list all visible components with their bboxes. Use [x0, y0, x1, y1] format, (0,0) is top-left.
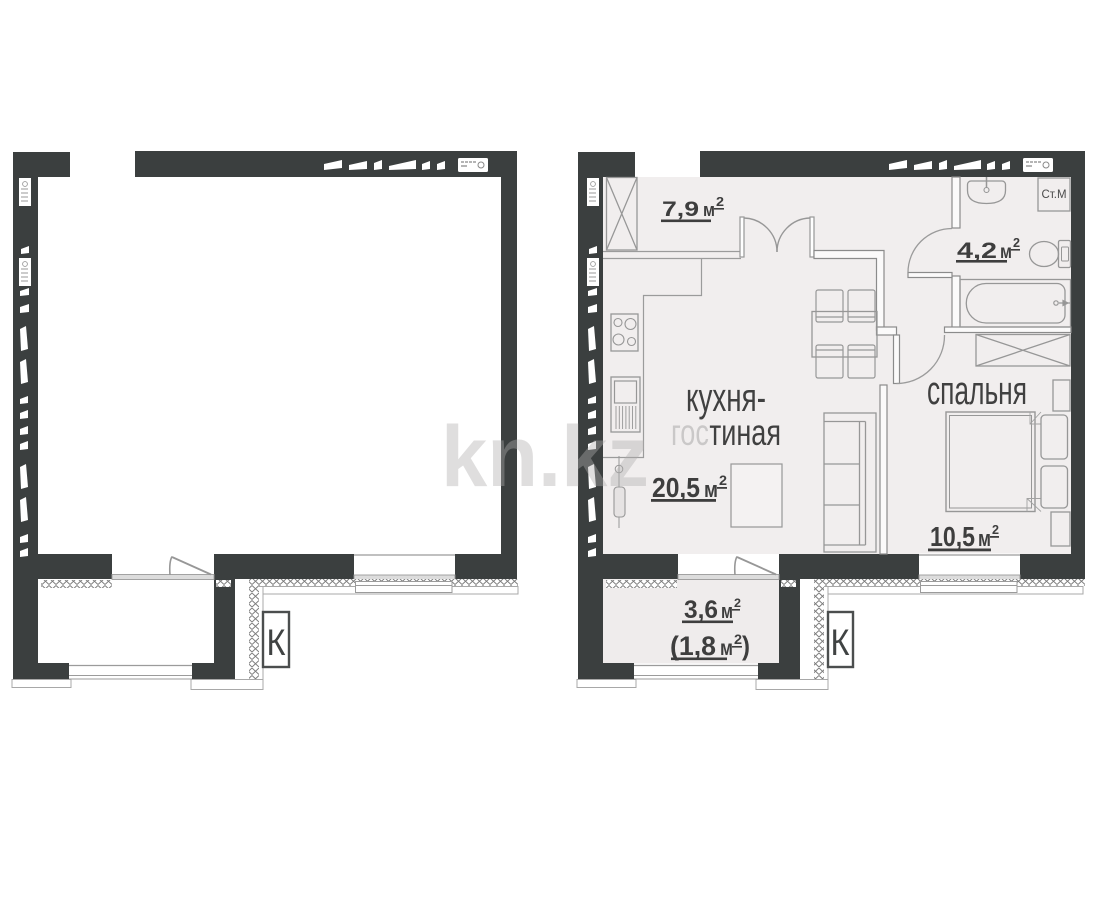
- svg-text:2: 2: [734, 596, 741, 610]
- svg-text:4,2: 4,2: [957, 238, 997, 263]
- svg-text:2: 2: [716, 194, 724, 209]
- svg-text:м: м: [704, 477, 718, 502]
- svg-text:): ): [742, 631, 750, 661]
- svg-text:м: м: [721, 601, 733, 623]
- svg-text:м: м: [1000, 242, 1012, 263]
- svg-text:м: м: [703, 200, 715, 220]
- svg-text:Ст.М: Ст.М: [1042, 187, 1067, 201]
- svg-text:10,5: 10,5: [930, 521, 975, 552]
- svg-text:м: м: [978, 526, 991, 551]
- svg-text:спальня: спальня: [927, 369, 1027, 413]
- svg-text:2: 2: [1013, 235, 1020, 250]
- svg-text:2: 2: [719, 472, 727, 488]
- svg-text:3,6: 3,6: [684, 596, 718, 624]
- svg-text:м: м: [720, 637, 733, 660]
- svg-text:2: 2: [734, 631, 742, 647]
- svg-text:(1,8: (1,8: [670, 631, 716, 661]
- svg-text:20,5: 20,5: [652, 472, 700, 503]
- svg-text:К: К: [267, 622, 286, 663]
- svg-text:К: К: [831, 622, 850, 663]
- svg-text:kn.kz: kn.kz: [441, 409, 649, 505]
- svg-text:7,9: 7,9: [662, 198, 699, 221]
- svg-text:2: 2: [992, 522, 999, 537]
